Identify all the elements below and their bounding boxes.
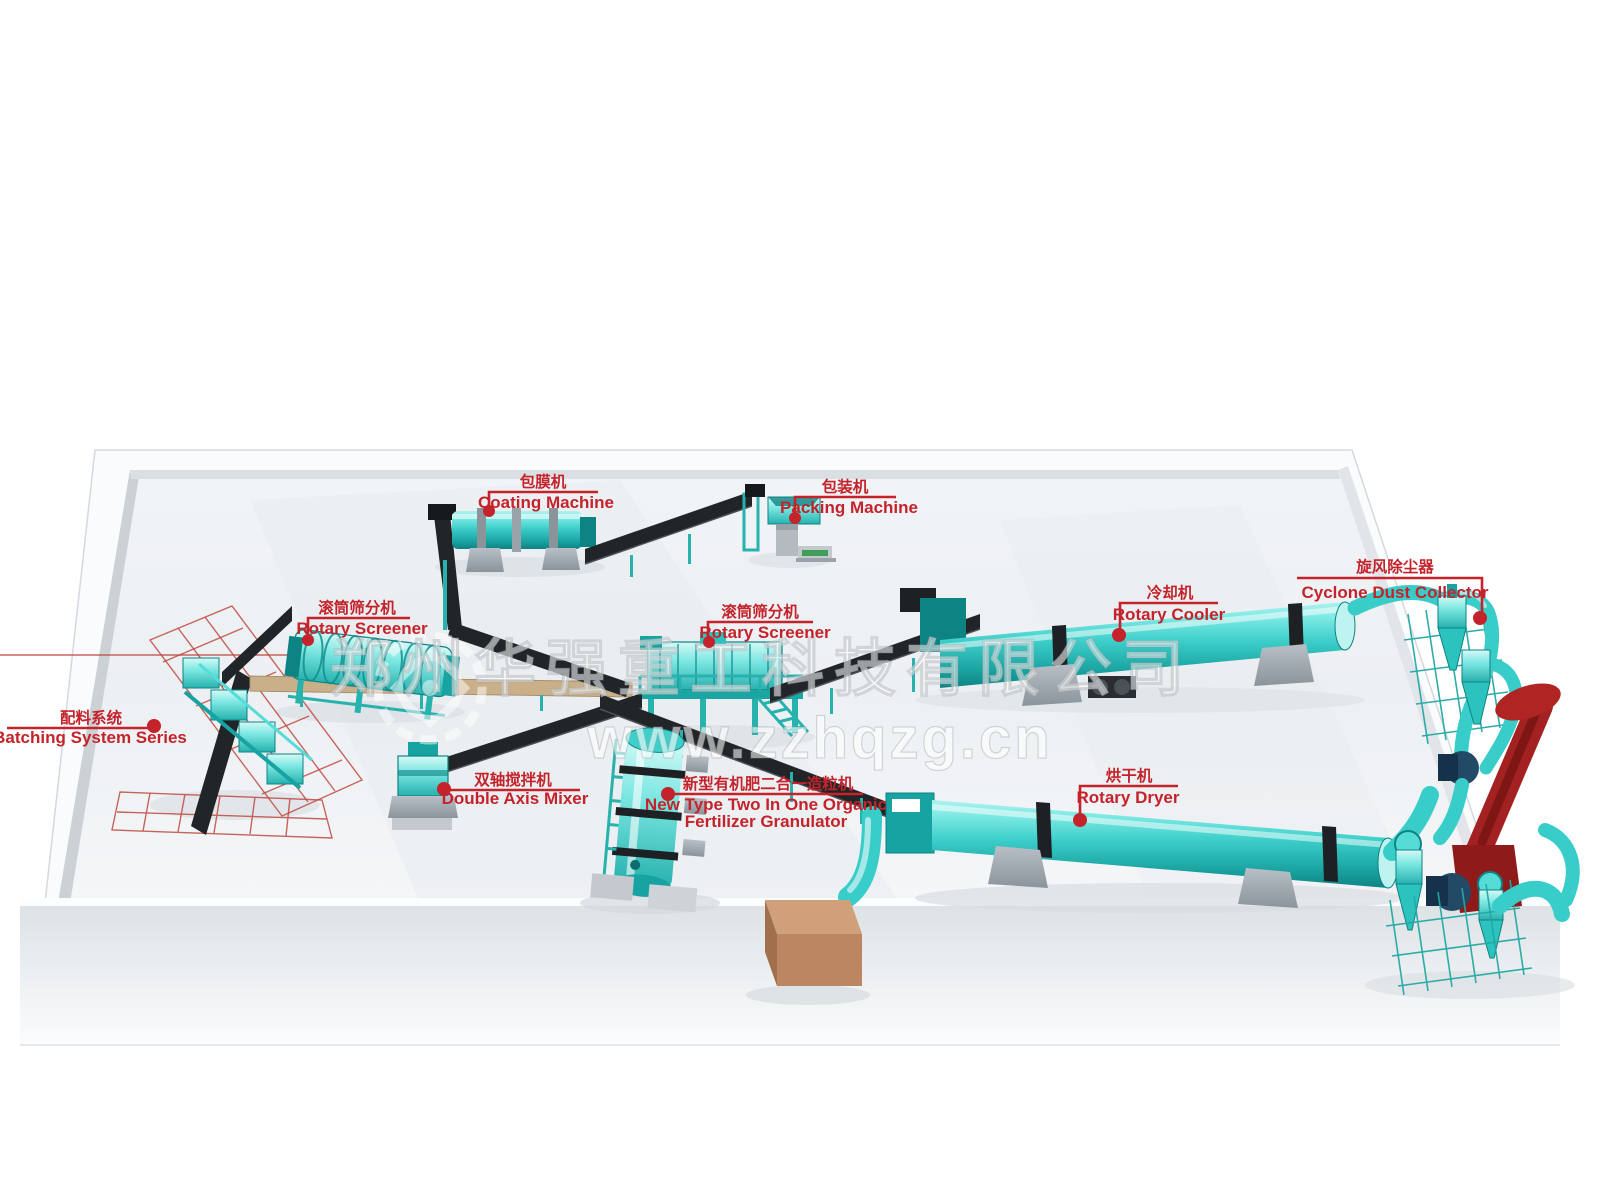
- plant-layout-illustration: 郑州华强重工科技有限公司 www.zzhqzg.cn 包膜机 Coating M…: [0, 0, 1600, 1200]
- label-rotary-screener-1-en: Rotary Screener: [296, 619, 428, 638]
- watermark-company: 郑州华强重工科技有限公司: [330, 635, 1194, 704]
- label-rotary-screener-1-zh: 滚筒筛分机: [318, 598, 396, 617]
- label-double-axis-mixer-zh: 双轴搅拌机: [474, 770, 552, 789]
- label-granulator-en2: Fertilizer Granulator: [685, 812, 848, 831]
- label-granulator-zh: 新型有机肥二合一造粒机: [683, 774, 854, 793]
- watermark-url: www.zzhqzg.cn: [586, 706, 1052, 771]
- label-double-axis-mixer-en: Double Axis Mixer: [442, 789, 589, 808]
- label-coating-machine-zh: 包膜机: [520, 472, 567, 491]
- label-rotary-cooler-zh: 冷却机: [1147, 583, 1194, 602]
- label-packing-machine-zh: 包装机: [822, 477, 869, 496]
- label-rotary-dryer-zh: 烘干机: [1106, 766, 1153, 785]
- label-batching-system-en: Batching System Series: [0, 728, 187, 747]
- label-coating-machine-en: Coating Machine: [478, 493, 614, 512]
- label-rotary-cooler-en: Rotary Cooler: [1113, 605, 1226, 624]
- label-cyclone-dust-collector-en: Cyclone Dust Collector: [1301, 583, 1488, 602]
- label-packing-machine-en: Packing Machine: [780, 498, 918, 517]
- label-rotary-screener-2-en: Rotary Screener: [699, 623, 831, 642]
- label-rotary-screener-2-zh: 滚筒筛分机: [721, 602, 799, 621]
- label-rotary-dryer-en: Rotary Dryer: [1077, 788, 1180, 807]
- label-batching-system-zh: 配料系统: [60, 708, 123, 727]
- scene-svg: 郑州华强重工科技有限公司 www.zzhqzg.cn 包膜机 Coating M…: [0, 0, 1600, 1200]
- label-cyclone-dust-collector-zh: 旋风除尘器: [1355, 557, 1434, 576]
